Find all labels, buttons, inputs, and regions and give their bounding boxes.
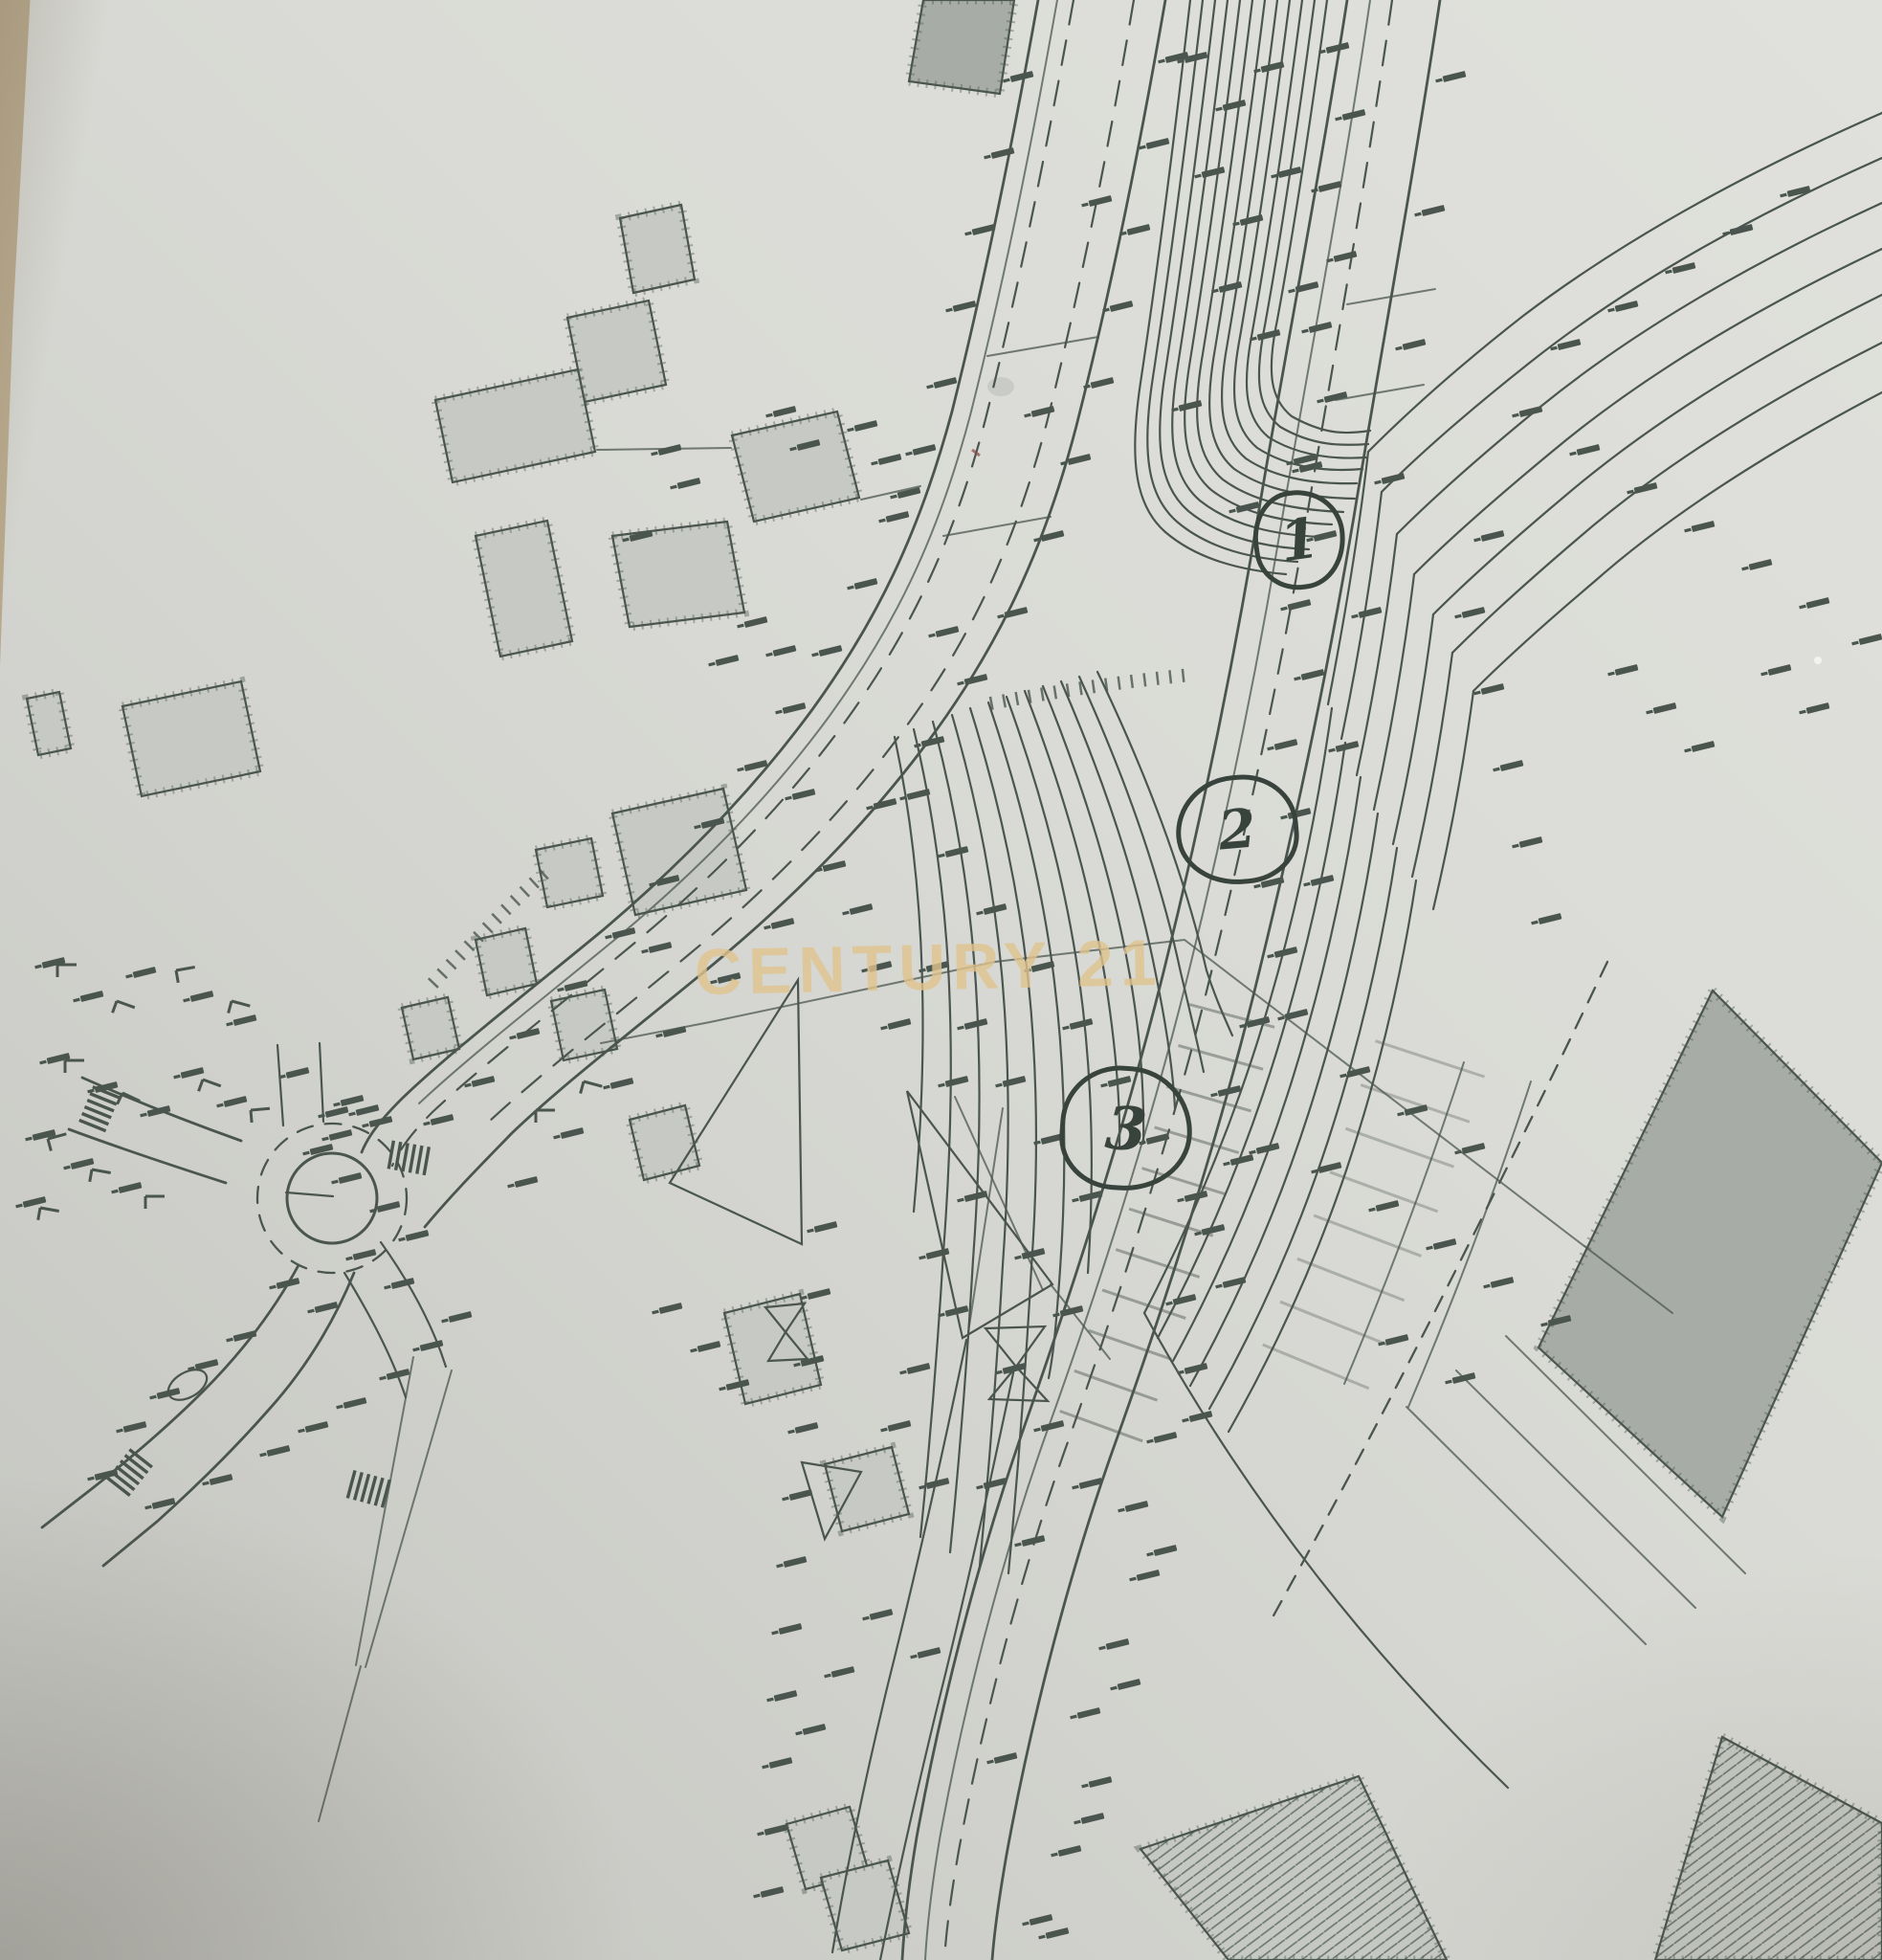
area-number-1: 1 <box>1275 505 1322 575</box>
area-number-3: 3 <box>1103 1092 1149 1165</box>
area-number-2: 2 <box>1216 796 1259 862</box>
photo-blemishes <box>972 377 1822 664</box>
crosswalk-marks <box>79 1087 430 1507</box>
contours-top-bundle <box>1135 0 1370 574</box>
photo-of-survey-plan: CENTURY 21 1 2 3 <box>0 0 1882 1960</box>
east-road <box>902 0 1440 1960</box>
main-road <box>362 0 1165 1227</box>
contours-middle-fan <box>832 672 1232 1960</box>
paper-sheet: CENTURY 21 1 2 3 <box>0 0 1882 1960</box>
map-drawing <box>0 0 1882 1960</box>
contours-top-right <box>1328 113 1882 909</box>
